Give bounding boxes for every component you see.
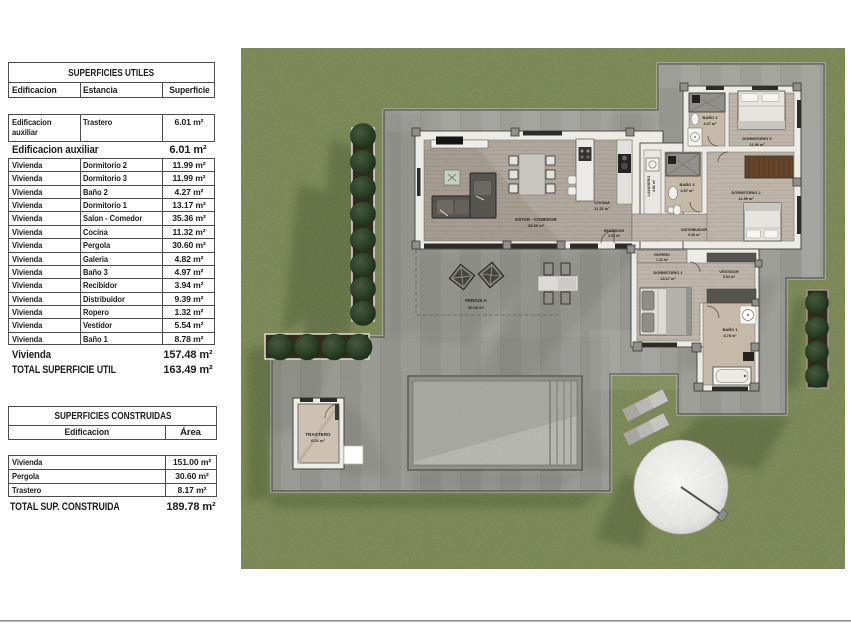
svg-text:TRASTERO: TRASTERO <box>305 432 331 437</box>
svg-text:4.97 m²: 4.97 m² <box>680 189 694 193</box>
svg-text:9.38 m²: 9.38 m² <box>688 233 701 237</box>
svg-text:COCINA: COCINA <box>594 200 610 205</box>
svg-text:RECIBIDOR: RECIBIDOR <box>604 229 625 233</box>
svg-text:4.82 m²: 4.82 m² <box>652 179 656 192</box>
svg-text:DORMITORIO 2: DORMITORIO 2 <box>731 190 761 195</box>
svg-text:13.17 m²: 13.17 m² <box>660 277 676 281</box>
svg-text:11.32 m²: 11.32 m² <box>595 207 611 211</box>
svg-text:VESTIDOR: VESTIDOR <box>719 270 739 274</box>
svg-text:6.01 m²: 6.01 m² <box>311 438 325 443</box>
svg-text:5.54 m²: 5.54 m² <box>723 275 736 279</box>
svg-text:11.99 m²: 11.99 m² <box>739 197 755 201</box>
svg-text:11.99 m²: 11.99 m² <box>750 143 766 147</box>
svg-text:ROPERO: ROPERO <box>654 253 670 257</box>
svg-text:LAVADERO: LAVADERO <box>647 176 651 197</box>
svg-text:35.36 m²: 35.36 m² <box>528 223 545 228</box>
svg-text:BAÑO 3: BAÑO 3 <box>679 182 695 187</box>
svg-text:ESTAR - COMEDOR: ESTAR - COMEDOR <box>515 217 557 222</box>
svg-text:DORMITORIO 3: DORMITORIO 3 <box>742 136 772 141</box>
svg-text:DISTRIBUIDOR: DISTRIBUIDOR <box>681 228 707 232</box>
svg-text:BAÑO 2: BAÑO 2 <box>702 115 718 120</box>
svg-text:8.78 m²: 8.78 m² <box>723 334 737 338</box>
svg-text:1.32 m²: 1.32 m² <box>656 258 669 262</box>
svg-text:3.94 m²: 3.94 m² <box>608 234 621 238</box>
svg-text:4.27 m²: 4.27 m² <box>703 122 717 126</box>
svg-text:BAÑO 1: BAÑO 1 <box>722 327 738 332</box>
svg-text:30.60 m²: 30.60 m² <box>468 305 485 310</box>
svg-text:PERGOLA: PERGOLA <box>465 298 488 303</box>
svg-text:DORMITORIO 1: DORMITORIO 1 <box>653 270 683 275</box>
